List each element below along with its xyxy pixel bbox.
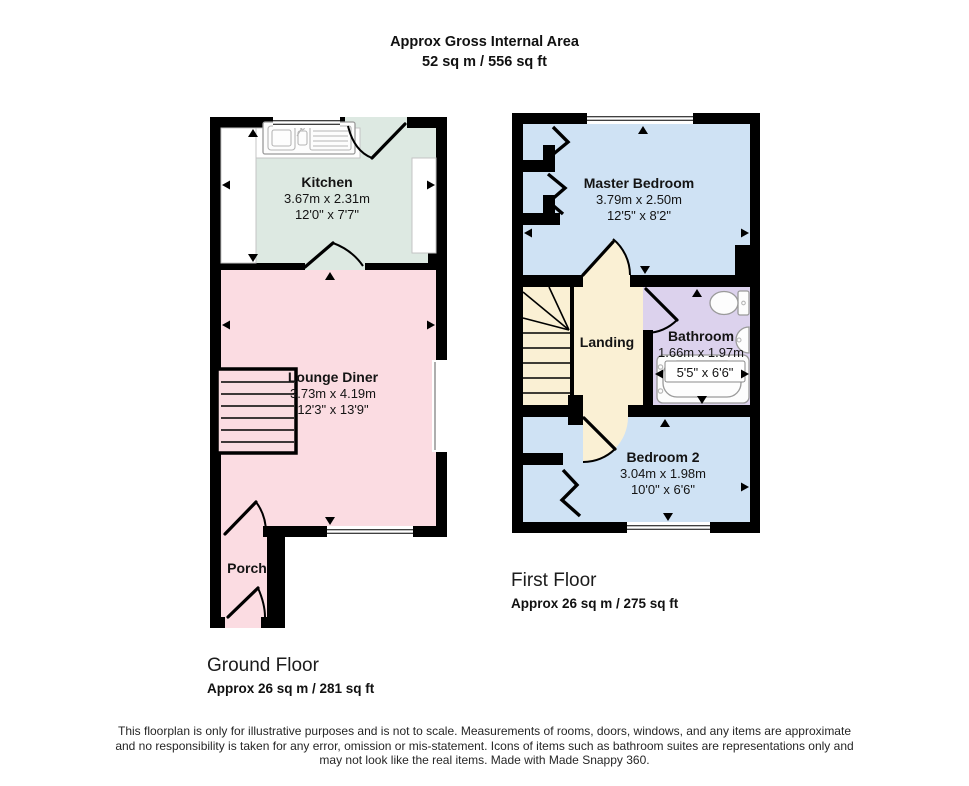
- bedroom2-door-opening: [583, 405, 628, 417]
- bathroom-name: Bathroom: [668, 328, 734, 344]
- ground-floor-caption: Ground Floor Approx 26 sq m / 281 sq ft: [207, 655, 374, 696]
- ground-floor-plan: Kitchen 3.67m x 2.31m 12'0" x 7'7" Loung…: [205, 110, 460, 640]
- bedroom2-imperial: 10'0" x 6'6": [631, 482, 695, 497]
- first-floor-plan: Master Bedroom 3.79m x 2.50m 12'5" x 8'2…: [505, 108, 760, 538]
- disclaimer: This floorplan is only for illustrative …: [0, 724, 969, 768]
- bathroom-metric: 1.66m x 1.97m: [658, 345, 744, 360]
- toilet-icon: [710, 291, 749, 315]
- lounge-imperial: 12'3" x 13'9": [297, 402, 369, 417]
- ground-floor-area: Approx 26 sq m / 281 sq ft: [207, 681, 374, 696]
- kitchen-metric: 3.67m x 2.31m: [284, 191, 370, 206]
- porch-floor: [221, 537, 267, 617]
- title-line2: 52 sq m / 556 sq ft: [0, 52, 969, 72]
- bedroom2-metric: 3.04m x 1.98m: [620, 466, 706, 481]
- bathroom-imperial: 5'5" x 6'6": [677, 365, 734, 380]
- lounge-side-window: [432, 360, 447, 452]
- porch-exit-opening: [225, 617, 261, 628]
- first-floor-area: Approx 26 sq m / 275 sq ft: [511, 596, 678, 611]
- first-floor-label: First Floor: [511, 570, 678, 592]
- master-metric: 3.79m x 2.50m: [596, 192, 682, 207]
- lounge-metric: 3.73m x 4.19m: [290, 386, 376, 401]
- kitchen-name: Kitchen: [301, 174, 352, 190]
- porch-name: Porch: [227, 560, 267, 576]
- kitchen-door-opening: [305, 263, 365, 270]
- bedroom2-name: Bedroom 2: [626, 449, 699, 465]
- ground-stairs: [217, 369, 296, 453]
- gross-internal-area-title: Approx Gross Internal Area 52 sq m / 556…: [0, 32, 969, 72]
- disclaimer-line3: may not look like the real items. Made w…: [0, 753, 969, 768]
- disclaimer-line1: This floorplan is only for illustrative …: [0, 724, 969, 739]
- master-window: [587, 113, 693, 124]
- floorplan-page: Approx Gross Internal Area 52 sq m / 556…: [0, 0, 969, 786]
- disclaimer-line2: and no responsibility is taken for any e…: [0, 739, 969, 754]
- master-name: Master Bedroom: [584, 175, 694, 191]
- master-imperial: 12'5" x 8'2": [607, 208, 671, 223]
- landing-name: Landing: [580, 334, 634, 350]
- first-floor-caption: First Floor Approx 26 sq m / 275 sq ft: [511, 570, 678, 611]
- kitchen-window: [273, 117, 340, 128]
- bathroom-wall: [643, 330, 653, 405]
- lounge-name: Lounge Diner: [288, 369, 379, 385]
- ground-floor-label: Ground Floor: [207, 655, 374, 677]
- title-line1: Approx Gross Internal Area: [0, 32, 969, 52]
- wall-block: [735, 245, 760, 275]
- master-door-opening: [583, 275, 630, 287]
- kitchen-imperial: 12'0" x 7'7": [295, 207, 359, 222]
- bedroom2-window: [627, 522, 710, 533]
- lounge-bottom-window: [327, 526, 413, 537]
